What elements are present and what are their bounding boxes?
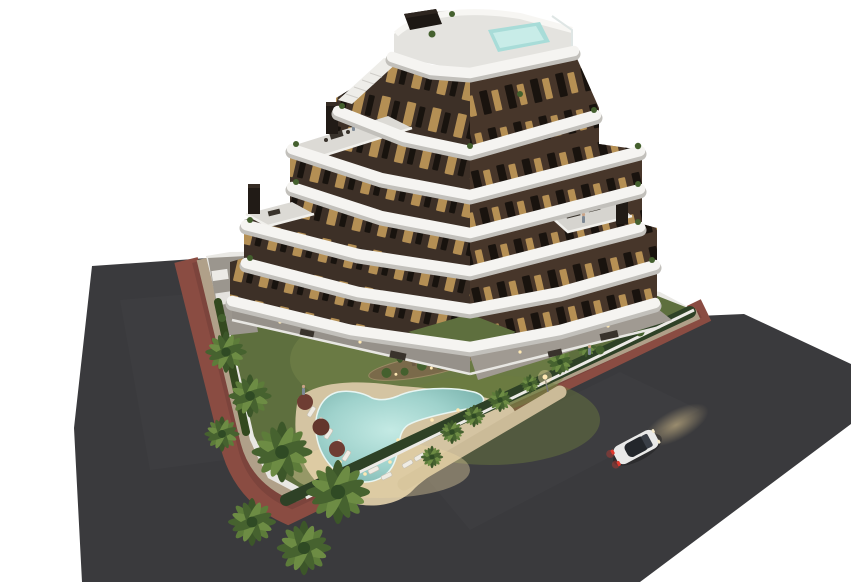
pool-light: [388, 460, 392, 464]
roof-plant: [429, 31, 436, 38]
balcony-plant: [247, 255, 253, 261]
terrace-chair: [346, 130, 350, 134]
person-poolside: [302, 385, 305, 395]
chimney-cap: [248, 184, 260, 188]
parasol: [329, 441, 345, 457]
balcony-plant: [649, 257, 655, 263]
parasol: [313, 419, 330, 436]
terrace-lamp: [518, 350, 521, 353]
balcony-plant: [635, 219, 641, 225]
balcony-plant: [293, 179, 299, 185]
person-terrace: [588, 345, 591, 355]
parasol: [297, 394, 313, 410]
pool-light: [456, 408, 460, 412]
pool-light: [430, 418, 434, 422]
balcony-plant: [247, 217, 253, 223]
shrub: [218, 314, 226, 322]
architectural-render: [0, 0, 851, 582]
shrub: [596, 346, 605, 355]
person-roof-terrace: [582, 213, 585, 223]
chimney-cap: [326, 102, 338, 106]
balcony-plant: [339, 103, 345, 109]
roof-plant: [449, 11, 455, 17]
person-figure-head: [302, 385, 305, 388]
chimney: [248, 184, 260, 214]
render-canvas: [0, 0, 851, 582]
lamp-glow: [538, 370, 552, 384]
balcony-plant: [635, 143, 641, 149]
terrace-chair: [324, 138, 328, 142]
balcony-plant: [517, 91, 523, 97]
person-figure: [302, 388, 305, 395]
person-figure: [588, 348, 591, 355]
balcony-plant: [635, 181, 641, 187]
balcony-plant: [467, 143, 473, 149]
person-figure: [582, 216, 585, 223]
balcony-plant: [591, 107, 597, 113]
balcony-plant: [293, 141, 299, 147]
person-figure-head: [588, 345, 591, 348]
pool-light: [363, 472, 367, 476]
